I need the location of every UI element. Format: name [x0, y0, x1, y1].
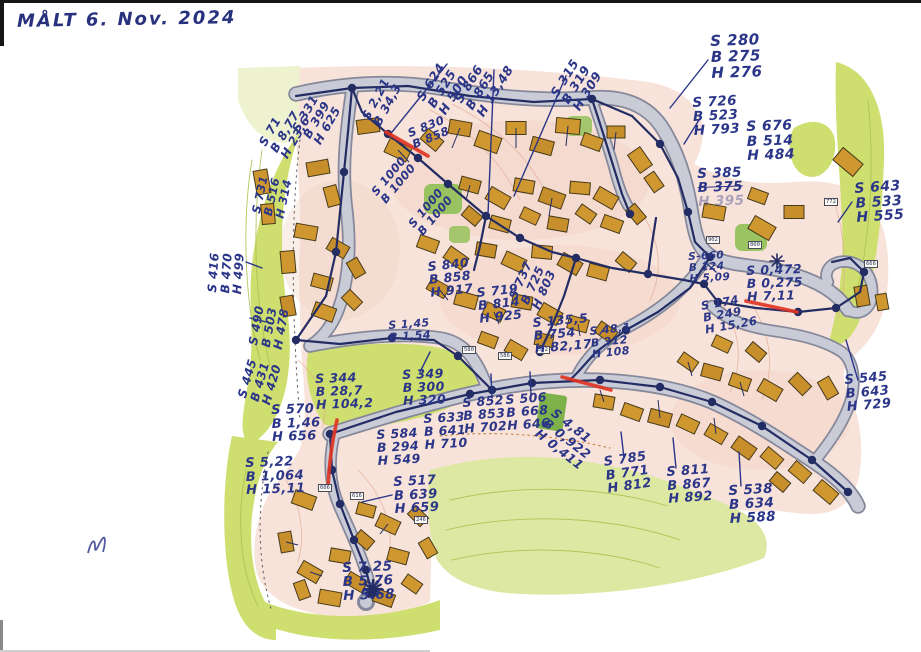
- measurement-line: H 499: [231, 253, 246, 295]
- measurement-note: S 48,1B 312H 108: [589, 322, 634, 361]
- measurement-line: H 892: [668, 490, 713, 507]
- measurement-note: S 570B 1,46H 656: [271, 402, 321, 445]
- measurement-note: S 416B 470H 499: [206, 251, 247, 295]
- measurement-line: H 5.68: [343, 588, 395, 604]
- measurement-line: H 320: [403, 393, 446, 408]
- measurement-note: S 785B 771H 812: [603, 450, 653, 497]
- measurement-line: H 702: [464, 419, 508, 435]
- scan-edge-left: [0, 0, 4, 46]
- scan-edge-bottomleft: [0, 620, 3, 652]
- measurement-line: B 1,54: [389, 329, 431, 343]
- measurement-note: S 1,45B 1,54: [388, 317, 431, 343]
- measurement-note: S 840B 858H 917: [427, 256, 474, 300]
- measurement-note: S 538B 634H 588: [728, 482, 776, 527]
- measurement-line: H 917: [430, 282, 474, 300]
- measurement-line: H 395: [698, 194, 745, 210]
- scanned-map-page: 902800772666606616246580586592 MÅLT 6. N…: [0, 0, 921, 652]
- measurement-note: S 584B 294H 549: [376, 426, 421, 468]
- measurement-note: S 135,5B 754H 82,17: [532, 311, 592, 355]
- measurement-line: H 549: [377, 452, 421, 467]
- measurement-line: H 5,09: [689, 272, 730, 285]
- measurement-note: S 2,21B 34,3: [360, 76, 404, 128]
- scan-edge-top: [0, 0, 921, 3]
- measurement-line: H 276: [711, 64, 763, 82]
- annotations-layer: S 624B 525H 500S 866B 865H 13,48S 315B 3…: [0, 0, 921, 652]
- measurement-line: H 82,17: [534, 337, 592, 355]
- measurement-note: S 344B 28,7H 104,2: [315, 370, 373, 411]
- measurement-note: S 811B 867H 892: [666, 463, 713, 507]
- measurement-note: S 643B 533H 555: [854, 179, 905, 226]
- measurement-line: H 729: [846, 397, 892, 414]
- measurement-note: S 1000B 1000: [406, 186, 455, 238]
- measurement-line: H 484: [747, 148, 795, 164]
- measurement-note: S 490B 503H 478: [247, 303, 291, 350]
- measurement-note: S-660B 124H 5,09: [688, 250, 730, 285]
- measurement-line: H 104,2: [316, 396, 374, 411]
- measurement-note: S 726B 523H 793: [692, 94, 740, 139]
- measurement-note: S 0,472B 0,275H 7,11: [746, 262, 804, 303]
- measurement-note: S 385B 375H 395: [697, 165, 745, 209]
- measurement-note: S 517B 639H 659: [393, 474, 440, 517]
- measurement-line: H 7,11: [747, 288, 804, 303]
- measurement-note: S 349B 300H 320: [402, 367, 446, 408]
- measurement-line: H 793: [693, 122, 740, 139]
- measurement-note: S 445B 431H 420: [236, 356, 284, 406]
- measurement-line: H 108: [591, 345, 633, 361]
- measurement-note: S 1000B 1000: [369, 154, 418, 206]
- measurement-line: H 925: [479, 308, 523, 326]
- measurement-note: S 866B 865H 13,48: [452, 50, 516, 119]
- measurement-note: S 7.25B 5.76H 5.68: [342, 559, 395, 603]
- measurement-line: H 15,11: [246, 482, 306, 498]
- measurement-note: S 676B 514H 484: [746, 118, 795, 164]
- measurement-note: S 852B 853H 702: [462, 393, 508, 435]
- measurement-line: H 656: [272, 430, 321, 445]
- measurement-note: S 280B 275H 276: [710, 32, 763, 81]
- measurement-line: H 710: [424, 436, 468, 451]
- measurement-note: S 633B 641H 710: [423, 410, 468, 452]
- measurement-line: H 555: [856, 208, 905, 226]
- measurement-note: S 174B 249H 15,26: [700, 291, 758, 336]
- measurement-line: H 659: [394, 501, 439, 517]
- measurement-note: S 830B 858: [406, 113, 451, 150]
- measurement-note: S 545B 643H 729: [844, 370, 892, 415]
- measurement-note: S 5,22B 1,064H 15,11: [245, 455, 306, 498]
- measurement-note: S 315B 319H 309: [548, 56, 604, 113]
- measurement-note: S 731B 516H 314: [250, 173, 294, 219]
- measurement-line: H 588: [729, 510, 776, 527]
